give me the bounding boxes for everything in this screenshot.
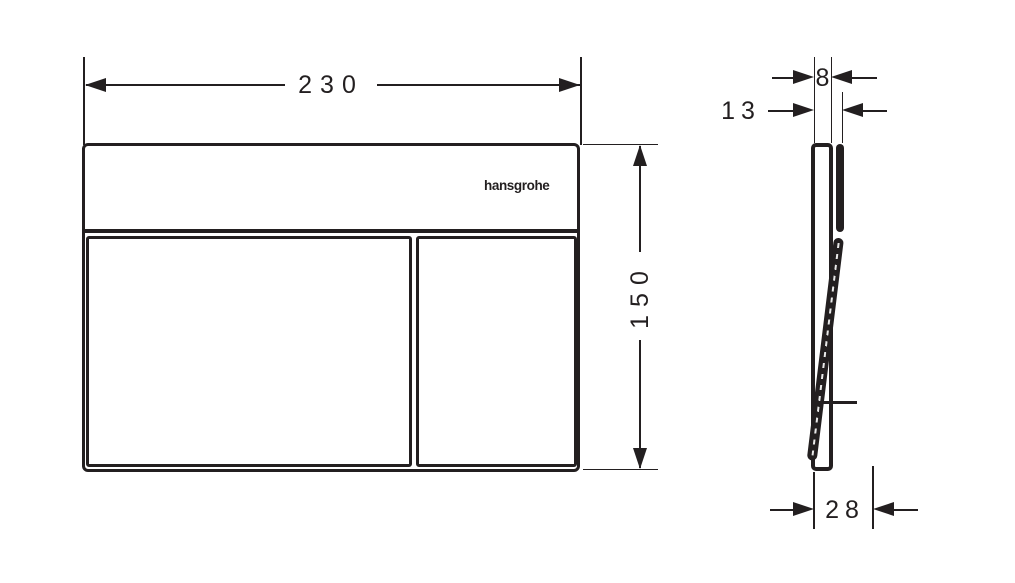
dim-leader-13-left [768,110,794,112]
dim-label-open-depth: 28 [816,497,874,523]
arrowhead-28-right [873,502,894,516]
logo-band-divider [85,229,577,233]
dim-label-height: 150 [627,241,653,351]
ext-line-150-bottom [583,469,658,471]
dim-line-230-right [377,84,580,86]
ext-line-150-top [583,144,658,146]
arrowhead-13-right [842,103,863,117]
button-flap-closed [836,144,844,232]
flush-button-small [416,236,577,467]
arrowhead-230-left [85,78,106,92]
dim-label-total-depth: 13 [712,98,770,124]
arrowhead-8-right [831,70,852,84]
dim-leader-28-left [770,509,793,511]
dim-leader-8-right [852,77,877,79]
ext-line-13-right [842,92,844,143]
ext-line-28-left [813,472,815,529]
dim-line-230-left [86,84,285,86]
arrowhead-28-left [793,502,814,516]
arrowhead-150-bottom [633,448,647,469]
dim-label-width: 230 [276,72,386,98]
dim-leader-8-left [772,77,794,79]
brand-logo: hansgrohe [484,177,549,195]
dim-leader-28-right [893,509,918,511]
arrowhead-230-right [559,78,580,92]
ext-line-230-right [580,57,582,145]
dim-leader-13-right [863,110,887,112]
flap-strut [814,401,857,405]
ext-line-230-left [83,57,85,145]
technical-drawing-canvas: 230 hansgrohe 150 8 13 28 [0,0,1015,583]
arrowhead-150-top [633,145,647,166]
arrowhead-13-left [793,103,814,117]
flush-button-large [86,236,413,467]
